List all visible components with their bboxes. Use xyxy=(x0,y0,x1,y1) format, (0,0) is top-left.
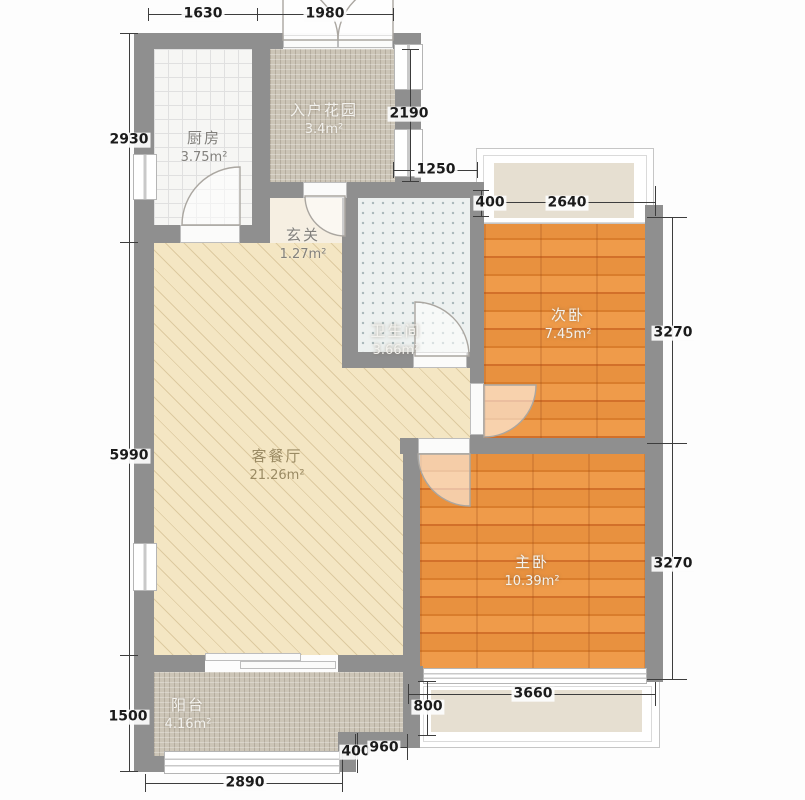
wall xyxy=(134,225,180,243)
wall xyxy=(338,655,420,672)
living-window xyxy=(133,543,157,591)
second-bedroom-door-leaf xyxy=(470,383,484,435)
dim-label: 3270 xyxy=(652,326,695,341)
dim-tick xyxy=(120,33,138,34)
dim-tick xyxy=(408,684,409,704)
dim-tick xyxy=(393,8,394,21)
dim-tick xyxy=(418,735,436,736)
wall xyxy=(470,438,478,454)
dim-tick xyxy=(407,734,408,760)
wall xyxy=(478,438,663,454)
dim-label: 2640 xyxy=(546,196,589,211)
dim-label: 1500 xyxy=(107,710,150,725)
master-window-sill xyxy=(423,668,647,684)
dim-tick xyxy=(647,443,687,444)
dim-tick xyxy=(120,771,138,772)
room-label-entry-garden: 入户花园 3.4m² xyxy=(290,99,358,137)
room-label-bathroom: 卫生间 3.66m² xyxy=(370,320,421,358)
room-label-balcony: 阳台 4.16m² xyxy=(165,694,212,732)
room-label-foyer: 玄关 1.27m² xyxy=(280,224,327,262)
room-label-living-dining: 客餐厅 21.26m² xyxy=(249,445,304,483)
dim-label: 3270 xyxy=(652,557,695,572)
room-label-kitchen: 厨房 3.75m² xyxy=(181,127,228,165)
dim-tick xyxy=(647,679,687,680)
dim-label: 1980 xyxy=(304,7,347,22)
wall xyxy=(342,198,358,368)
dim-tick xyxy=(418,681,436,682)
balcony-sliding-panel xyxy=(205,653,301,661)
room-label-master-bedroom: 主卧 10.39m² xyxy=(504,551,559,589)
balcony-window xyxy=(164,751,340,774)
dim-tick xyxy=(655,682,656,706)
dim-tick xyxy=(148,8,149,21)
kitchen-door-leaf xyxy=(180,225,240,243)
dim-tick xyxy=(402,181,419,182)
wall xyxy=(252,49,270,225)
dim-tick xyxy=(473,190,489,191)
balcony-sliding-panel xyxy=(240,661,336,669)
entry-door-leaf xyxy=(283,35,338,48)
wall xyxy=(240,225,270,243)
dim-tick xyxy=(402,49,419,50)
dim-label: 960 xyxy=(367,741,400,756)
dim-tick xyxy=(655,186,656,216)
wall xyxy=(347,182,483,198)
wall xyxy=(265,182,303,198)
dim-label: 2930 xyxy=(108,133,151,148)
dim-tick xyxy=(120,242,138,243)
dim-label: 2190 xyxy=(388,107,431,122)
dim-label: 800 xyxy=(411,700,444,715)
dim-label: 1630 xyxy=(182,7,225,22)
wall xyxy=(400,438,418,454)
floor-plan: 1630 1980 2930 5990 1500 2190 1250 400 2… xyxy=(0,0,805,800)
dim-tick xyxy=(120,655,138,656)
dim-label: 5990 xyxy=(108,449,151,464)
dim-tick xyxy=(647,217,687,218)
dim-tick xyxy=(145,774,146,792)
garden-window xyxy=(394,44,423,90)
kitchen-window xyxy=(133,154,157,200)
dim-tick xyxy=(393,162,394,178)
dim-label: 3660 xyxy=(512,687,555,702)
foyer-door-leaf xyxy=(303,182,347,198)
dim-label: 400 xyxy=(473,196,506,211)
master-bedroom-door-leaf xyxy=(418,438,470,454)
dim-tick xyxy=(477,162,478,178)
dim-label: 2890 xyxy=(224,776,267,791)
dim-label: 1250 xyxy=(415,163,458,178)
dim-tick xyxy=(342,774,343,792)
wall xyxy=(134,655,205,672)
dim-tick xyxy=(257,8,258,21)
room-label-second-bedroom: 次卧 7.45m² xyxy=(545,304,592,342)
dim-tick xyxy=(473,216,489,217)
entry-door-leaf xyxy=(338,35,393,48)
